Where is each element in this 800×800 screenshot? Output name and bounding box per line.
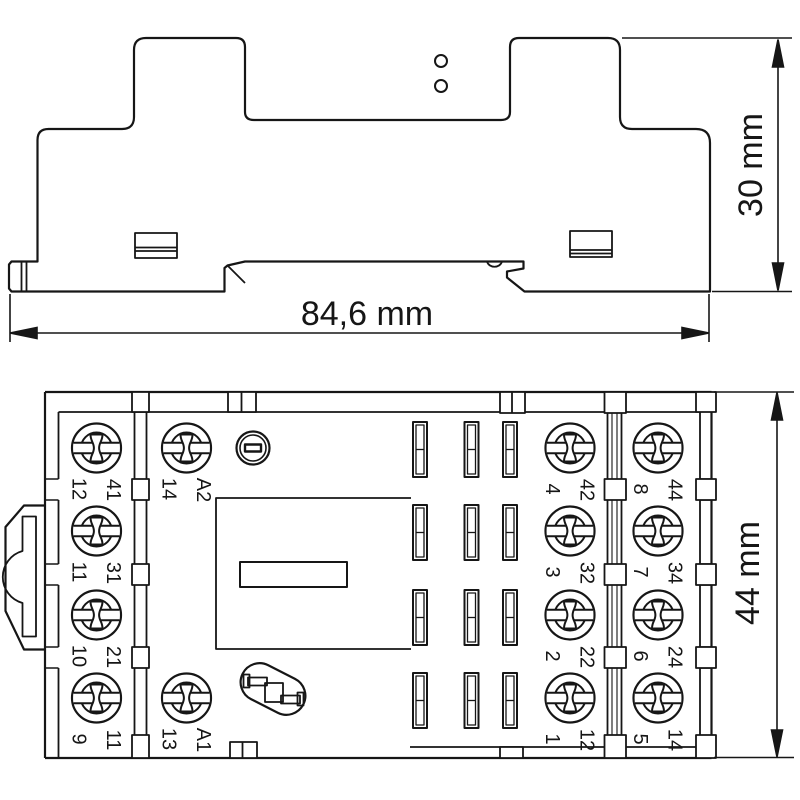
terminal-label: 12 [576, 729, 598, 751]
contact-slot [465, 673, 479, 728]
terminal-label: 5 [629, 733, 651, 744]
screw-terminal [72, 591, 121, 640]
terminal-label: 31 [102, 562, 124, 584]
contact-slots [413, 422, 517, 728]
terminal-label: 32 [576, 562, 598, 584]
dimension-depth: 44 mm [714, 392, 794, 758]
screw-terminal [546, 591, 595, 640]
terminal-label: 9 [68, 733, 90, 744]
wall-tabs [228, 392, 525, 758]
contact-slot [413, 505, 427, 560]
partition-col3-col4 [605, 392, 627, 758]
screw-terminal [162, 674, 211, 723]
partition-col1-col2 [132, 392, 149, 758]
arrow-left-icon [10, 328, 37, 339]
coding-hole [237, 432, 270, 465]
contact-slot [503, 422, 517, 477]
din-rail-clip [3, 506, 45, 650]
rail-channel-hook [228, 266, 245, 283]
terminal-label: 11 [102, 730, 124, 751]
terminal-label: 24 [664, 646, 686, 668]
contact-slot [503, 590, 517, 645]
screw-terminal [72, 424, 121, 473]
screw-terminal [72, 507, 121, 556]
terminal-label: 13 [158, 728, 180, 750]
terminal-label: 11 [68, 562, 90, 583]
terminal-label: 22 [576, 646, 598, 668]
label-window [240, 562, 347, 587]
terminal-label: A2 [192, 478, 214, 502]
arrow-right-icon [682, 328, 709, 339]
terminal-label: 21 [102, 646, 124, 668]
screw-terminal [546, 674, 595, 723]
contact-slot [503, 505, 517, 560]
terminal-label: 14 [664, 729, 686, 751]
release-latch [234, 657, 312, 722]
pilot-hole-lower [435, 80, 447, 92]
contact-slot [503, 673, 517, 728]
screw-terminal [634, 674, 683, 723]
terminal-label: 44 [664, 479, 686, 501]
screw-terminal [72, 674, 121, 723]
arrow-up-icon [772, 393, 783, 421]
terminal-label: 7 [629, 566, 651, 577]
terminal-label: 42 [576, 479, 598, 501]
terminal-label: 34 [664, 562, 686, 584]
contact-slot [465, 422, 479, 477]
dimension-width: 84,6 mm [10, 294, 709, 342]
terminal-label: 12 [68, 478, 90, 500]
terminal-label: 6 [629, 650, 651, 661]
contact-slot [413, 673, 427, 728]
screw-terminal [162, 424, 211, 473]
terminal-label: 41 [102, 479, 124, 501]
screw-terminal [634, 424, 683, 473]
terminal-label: 8 [629, 483, 651, 494]
arrow-down-icon [773, 263, 784, 291]
screw-terminal [634, 507, 683, 556]
contact-slot [413, 422, 427, 477]
screw-terminal [546, 507, 595, 556]
contact-slot [465, 505, 479, 560]
screw-terminal [634, 591, 683, 640]
screw-terminal [546, 424, 595, 473]
drawing-canvas: 84,6 mm 30 mm [0, 0, 800, 800]
arrow-down-icon [772, 730, 783, 757]
contact-slot [413, 590, 427, 645]
arrow-up-icon [773, 40, 784, 68]
terminal-label: 2 [541, 650, 563, 661]
dimension-width-label: 84,6 mm [301, 295, 433, 333]
dimension-depth-label: 44 mm [729, 521, 767, 625]
technical-drawing-page: 84,6 mm 30 mm [0, 0, 800, 800]
center-recess [216, 498, 411, 649]
contact-slot [465, 590, 479, 645]
terminal-label: 10 [68, 645, 90, 667]
terminal-label: 3 [541, 566, 563, 577]
partition-right-edge [696, 392, 716, 758]
terminal-label: 1 [541, 733, 563, 744]
dimension-height-label: 30 mm [732, 113, 770, 217]
terminal-label: 4 [541, 483, 563, 494]
terminal-label: 14 [158, 478, 180, 500]
pilot-hole-upper [435, 55, 447, 67]
terminal-label: A1 [192, 728, 214, 752]
side-view [9, 38, 710, 292]
